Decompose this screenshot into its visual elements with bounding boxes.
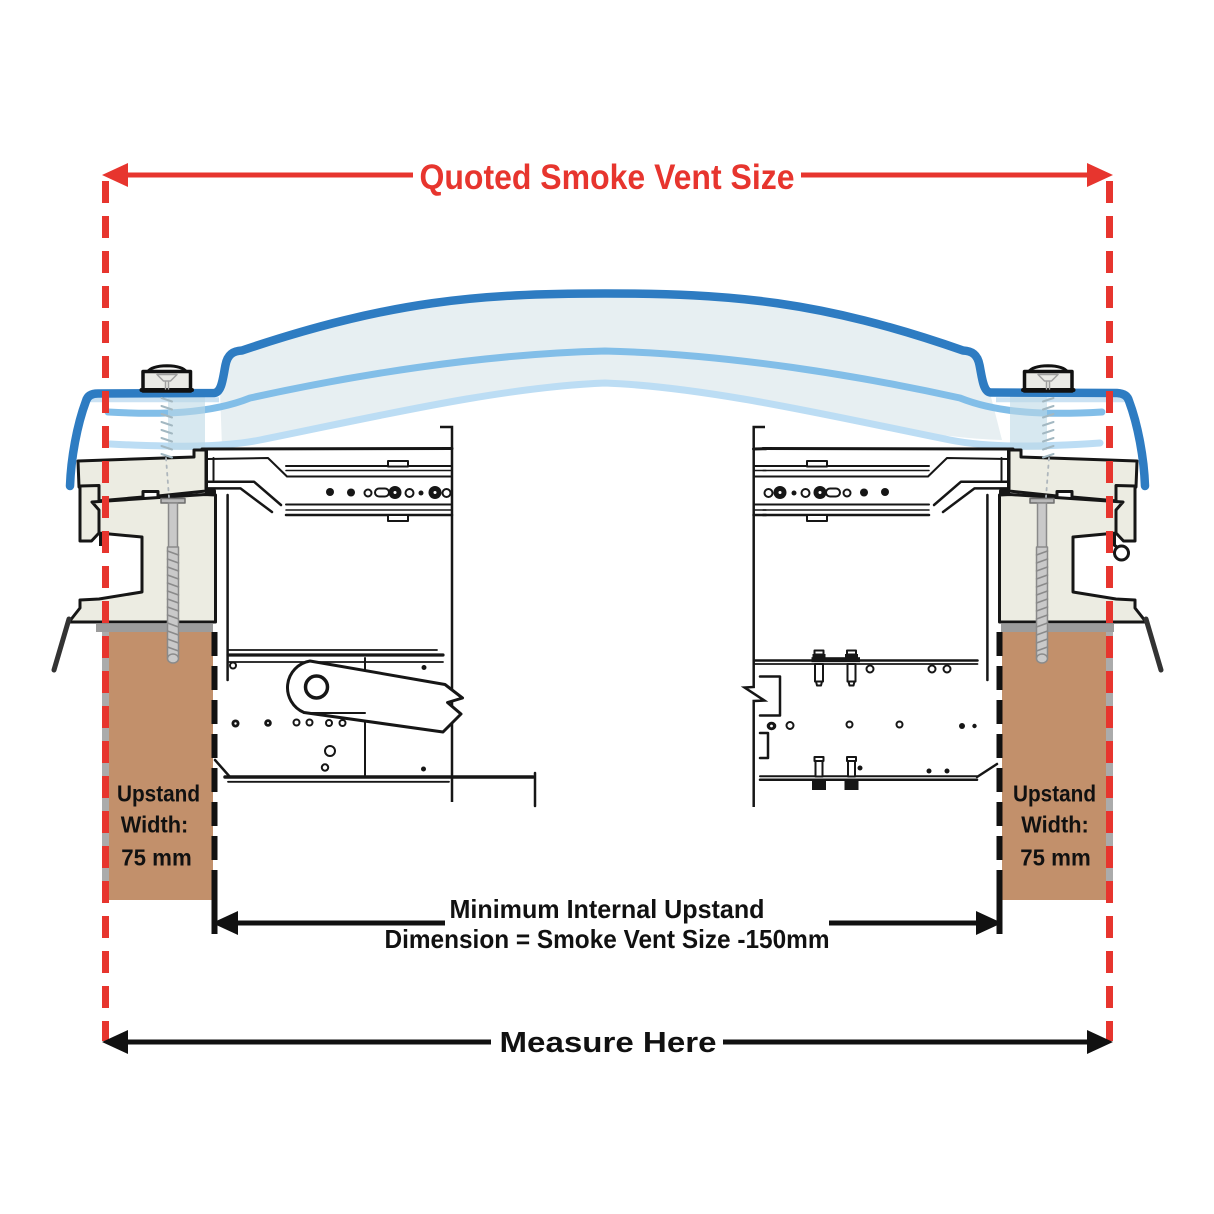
svg-text:75 mm: 75 mm [1020, 845, 1091, 871]
svg-text:Dimension = Smoke Vent Size -1: Dimension = Smoke Vent Size -150mm [385, 924, 830, 954]
svg-text:Upstand: Upstand [117, 781, 200, 807]
svg-text:Width:: Width: [121, 812, 189, 838]
svg-text:Width:: Width: [1021, 812, 1089, 838]
svg-text:Upstand: Upstand [1013, 781, 1096, 807]
svg-text:75 mm: 75 mm [121, 845, 192, 871]
svg-text:Quoted Smoke Vent Size: Quoted Smoke Vent Size [420, 158, 795, 197]
svg-text:Measure Here: Measure Here [500, 1027, 717, 1059]
svg-text:Minimum Internal Upstand: Minimum Internal Upstand [450, 894, 765, 924]
